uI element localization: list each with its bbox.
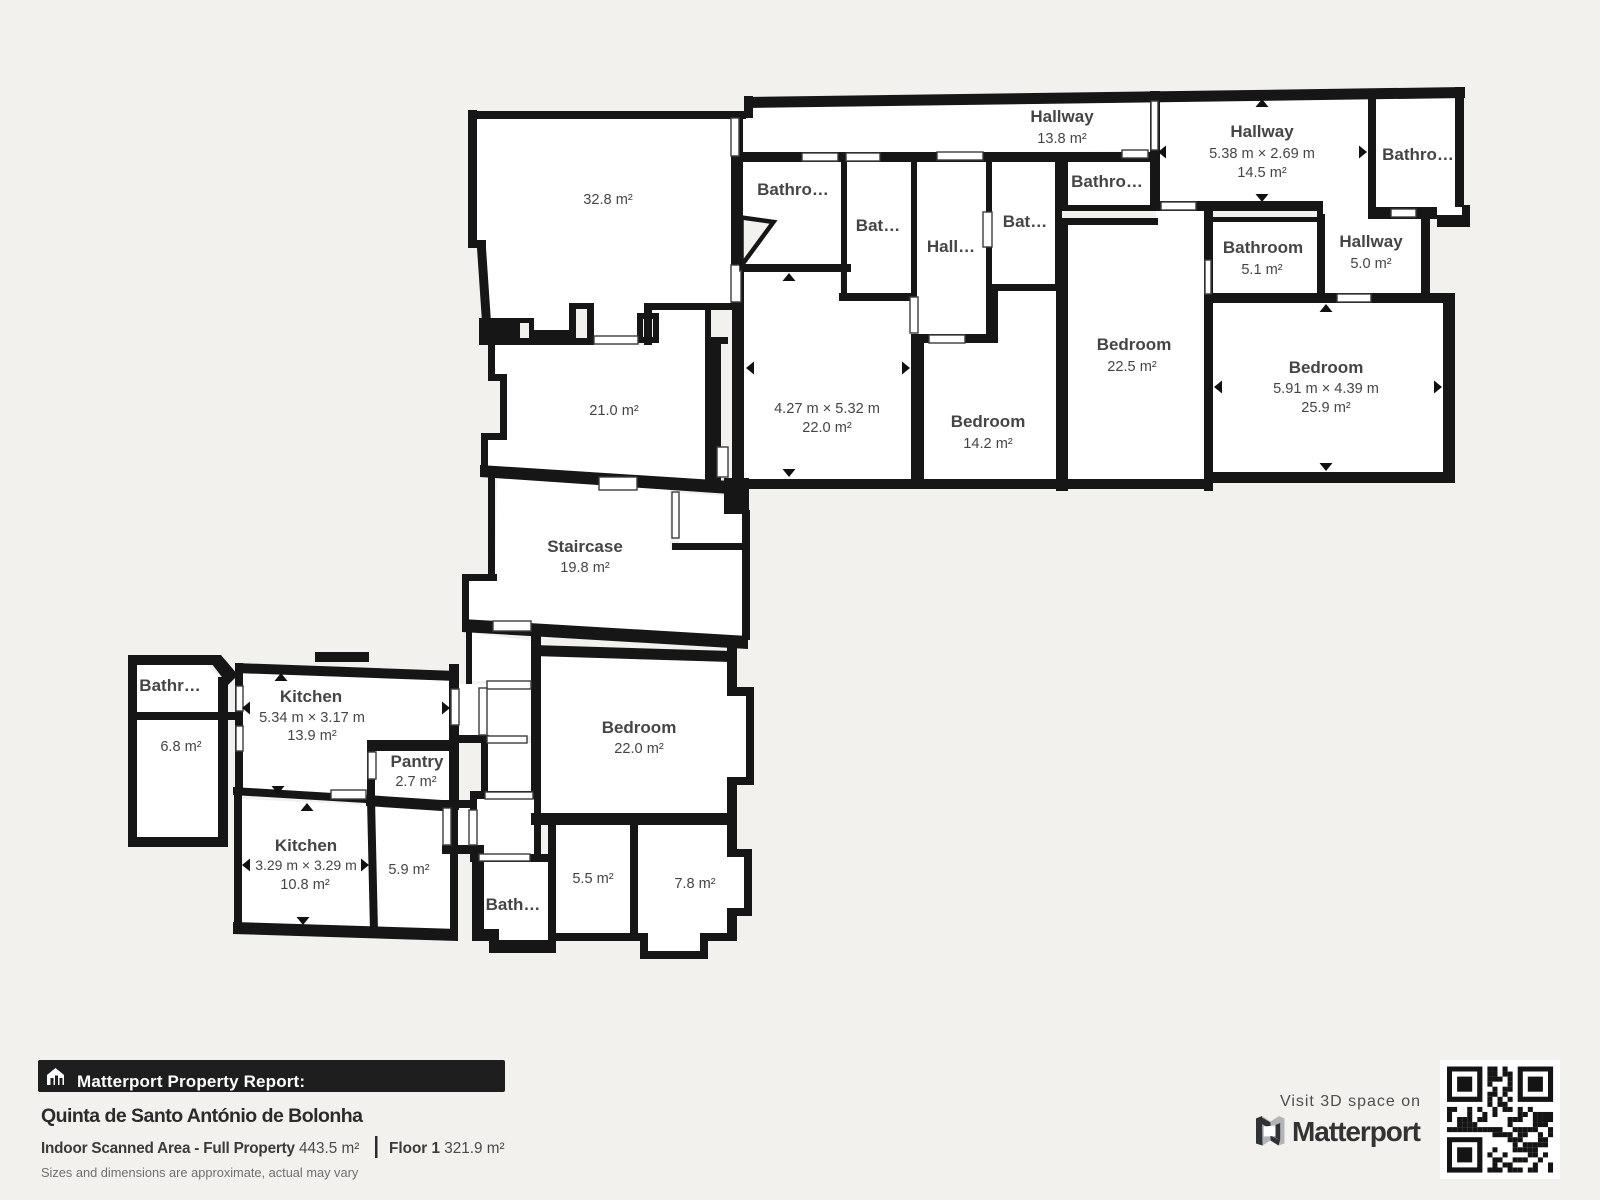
svg-text:5.34 m × 3.17 m: 5.34 m × 3.17 m [259,710,365,726]
svg-text:22.0 m²: 22.0 m² [802,420,852,436]
svg-text:21.0 m²: 21.0 m² [589,403,639,419]
svg-text:Bathro…: Bathro… [757,180,829,199]
svg-text:Bathroom: Bathroom [1223,238,1303,257]
svg-text:Staircase: Staircase [547,537,623,556]
svg-text:19.8 m²: 19.8 m² [560,560,610,576]
svg-text:Bedroom: Bedroom [1097,335,1172,354]
svg-text:Bat…: Bat… [856,216,900,235]
svg-text:Hall…: Hall… [927,237,975,256]
svg-text:Bedroom: Bedroom [1289,358,1364,377]
svg-text:5.5 m²: 5.5 m² [572,871,613,887]
svg-text:14.5 m²: 14.5 m² [1237,165,1287,181]
svg-text:5.38 m × 2.69 m: 5.38 m × 2.69 m [1209,146,1315,162]
svg-text:Indoor Scanned Area - Full Pro: Indoor Scanned Area - Full Property 443.… [41,1140,359,1157]
svg-text:22.5 m²: 22.5 m² [1107,359,1157,375]
svg-text:Visit 3D space on: Visit 3D space on [1280,1093,1420,1110]
svg-text:22.0 m²: 22.0 m² [614,741,664,757]
svg-text:Hallway: Hallway [1230,122,1294,141]
svg-text:Bath…: Bath… [486,895,541,914]
svg-text:7.8 m²: 7.8 m² [674,876,715,892]
svg-text:Bathro…: Bathro… [1071,172,1143,191]
svg-text:Bathro…: Bathro… [1382,145,1454,164]
svg-text:10.8 m²: 10.8 m² [280,877,330,893]
svg-text:Bathr…: Bathr… [139,676,200,695]
svg-text:2.7 m²: 2.7 m² [395,774,436,790]
svg-text:13.9 m²: 13.9 m² [287,728,337,744]
svg-text:5.0 m²: 5.0 m² [1350,256,1391,272]
svg-text:25.9 m²: 25.9 m² [1301,400,1351,416]
svg-text:Matterport Property Report:: Matterport Property Report: [77,1072,305,1091]
svg-text:Hallway: Hallway [1339,232,1403,251]
svg-text:Sizes and dimensions are appro: Sizes and dimensions are approximate, ac… [41,1165,359,1180]
svg-text:Floor 1 321.9 m²: Floor 1 321.9 m² [389,1140,505,1157]
svg-text:Pantry: Pantry [391,752,444,771]
svg-text:Kitchen: Kitchen [275,836,337,855]
svg-text:Bat…: Bat… [1003,212,1047,231]
svg-text:Bedroom: Bedroom [951,412,1026,431]
svg-text:Bedroom: Bedroom [602,718,677,737]
svg-text:Matterport: Matterport [1292,1116,1421,1147]
svg-text:6.8 m²: 6.8 m² [160,739,201,755]
svg-text:13.8 m²: 13.8 m² [1037,131,1087,147]
svg-text:14.2 m²: 14.2 m² [963,436,1013,452]
svg-text:3.29 m × 3.29 m: 3.29 m × 3.29 m [255,857,357,873]
svg-text:5.1 m²: 5.1 m² [1241,262,1282,278]
svg-text:Kitchen: Kitchen [280,687,342,706]
svg-text:5.91 m × 4.39 m: 5.91 m × 4.39 m [1273,381,1379,397]
svg-text:Quinta de Santo António de Bol: Quinta de Santo António de Bolonha [41,1105,363,1127]
svg-text:Hallway: Hallway [1030,107,1094,126]
svg-text:4.27 m × 5.32 m: 4.27 m × 5.32 m [774,401,880,417]
svg-text:5.9 m²: 5.9 m² [388,862,429,878]
svg-text:32.8 m²: 32.8 m² [583,192,633,208]
